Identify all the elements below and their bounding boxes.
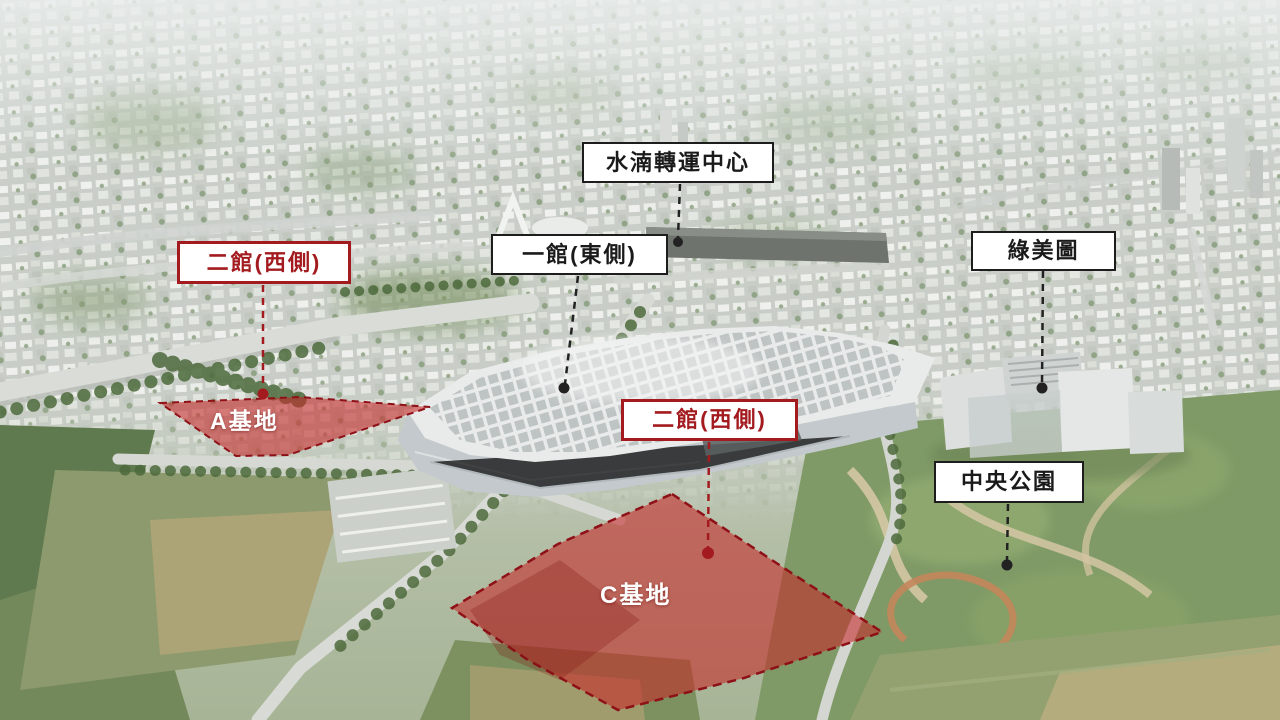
- label-hall-two-west-left: 二館(西側): [177, 241, 351, 284]
- annotated-aerial-map: 水湳轉運中心 一館(東側) 二館(西側) 二館(西側) 綠美圖 中央公園 A基地…: [0, 0, 1280, 720]
- label-transfer-center: 水湳轉運中心: [582, 142, 774, 183]
- leader-dot-hall-two-left: [258, 389, 269, 400]
- parking-lot: [327, 467, 456, 563]
- label-hall-two-west-center: 二館(西側): [621, 399, 798, 441]
- leader-dot-hall-one: [559, 383, 570, 394]
- label-green-museumbrary: 綠美圖: [971, 231, 1116, 271]
- leader-dot-hall-two-center: [702, 547, 714, 559]
- aerial-photo: [0, 0, 1280, 720]
- leader-museumbrary: [1042, 271, 1043, 384]
- leader-dot-transfer-center: [673, 237, 683, 247]
- label-hall-one-east: 一館(東側): [491, 234, 668, 275]
- label-site-c: C基地: [600, 575, 671, 610]
- leader-dot-central-park: [1002, 560, 1013, 571]
- label-site-a: A基地: [210, 402, 279, 436]
- label-central-park: 中央公園: [934, 461, 1084, 503]
- leader-dot-museumbrary: [1037, 383, 1048, 394]
